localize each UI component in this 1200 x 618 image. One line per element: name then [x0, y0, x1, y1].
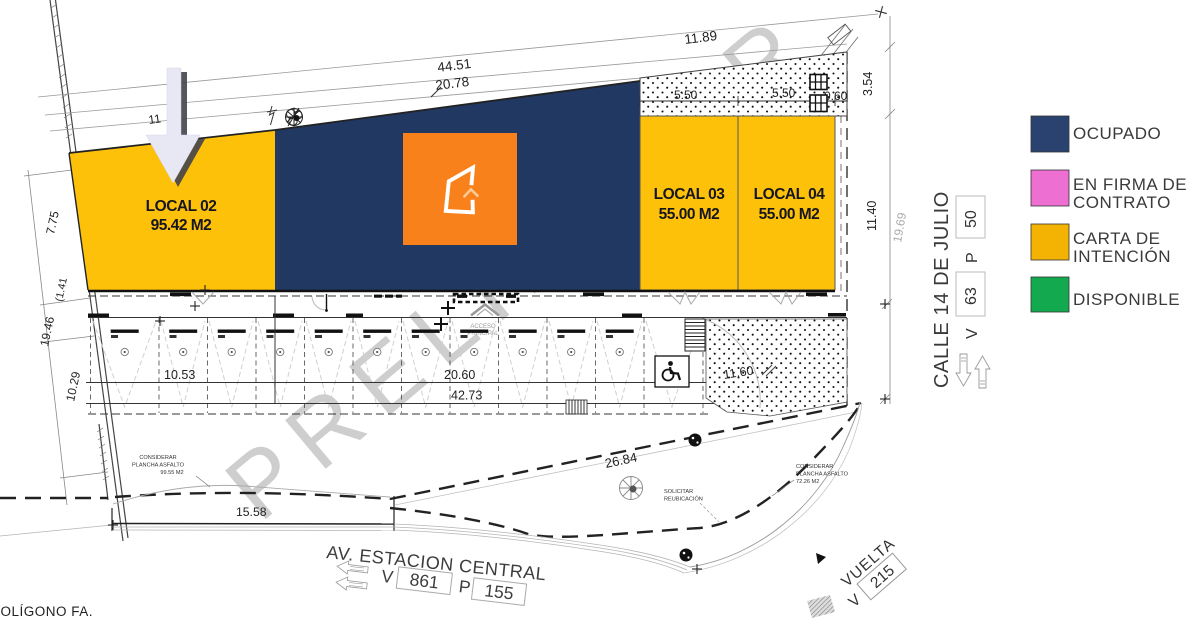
svg-text:55.00 M2: 55.00 M2 — [659, 206, 720, 223]
svg-text:LOCAL 02: LOCAL 02 — [146, 198, 217, 215]
svg-text:P: P — [964, 252, 981, 263]
svg-text:PLANCHA ASFALTO: PLANCHA ASFALTO — [132, 463, 185, 469]
svg-text:50: 50 — [963, 210, 980, 228]
svg-text:SOLICITAR: SOLICITAR — [664, 489, 693, 495]
svg-text:REUBICACIÓN: REUBICACIÓN — [664, 496, 703, 503]
svg-text:3.54: 3.54 — [861, 72, 875, 96]
svg-text:5:50: 5:50 — [674, 88, 698, 102]
svg-text:55.00 M2: 55.00 M2 — [759, 206, 820, 223]
svg-text:5.50: 5.50 — [772, 86, 796, 100]
svg-text:LOCAL 03: LOCAL 03 — [654, 186, 726, 203]
svg-text:72.26 M2: 72.26 M2 — [796, 479, 819, 485]
svg-text:CONSIDERAR: CONSIDERAR — [796, 464, 833, 470]
svg-text:POLÍGONO FA.: POLÍGONO FA. — [0, 604, 93, 618]
svg-text:10.53: 10.53 — [164, 368, 195, 382]
svg-text:CONSIDERAR: CONSIDERAR — [139, 455, 176, 461]
svg-text:15.58: 15.58 — [236, 505, 267, 519]
svg-text:INTENCIÓN: INTENCIÓN — [1073, 247, 1171, 266]
svg-text:OCUPADO: OCUPADO — [1073, 124, 1161, 143]
svg-text:11: 11 — [147, 111, 162, 127]
svg-text:155: 155 — [483, 580, 514, 603]
svg-text:V: V — [964, 328, 981, 339]
svg-text:CARTA DE: CARTA DE — [1073, 229, 1160, 248]
svg-text:DISPONIBLE: DISPONIBLE — [1073, 290, 1180, 309]
svg-text:20.60: 20.60 — [444, 368, 475, 382]
svg-text:42.73: 42.73 — [451, 389, 482, 403]
svg-text:ACCESO: ACCESO — [470, 324, 496, 330]
svg-text:P: P — [458, 576, 472, 597]
svg-text:99.55 M2: 99.55 M2 — [160, 470, 183, 476]
svg-text:63: 63 — [963, 287, 980, 305]
svg-text:95.42 M2: 95.42 M2 — [151, 217, 212, 234]
svg-text:CALLE 14 DE JULIO: CALLE 14 DE JULIO — [931, 191, 953, 388]
svg-text:11.40: 11.40 — [865, 201, 879, 231]
svg-text:PLANCHA ASFALTO: PLANCHA ASFALTO — [796, 472, 849, 478]
svg-text:CONTRATO: CONTRATO — [1073, 193, 1171, 212]
svg-text:861: 861 — [409, 569, 440, 592]
svg-text:LOCAL 04: LOCAL 04 — [754, 186, 826, 203]
svg-text:EN FIRMA DE: EN FIRMA DE — [1073, 175, 1187, 194]
